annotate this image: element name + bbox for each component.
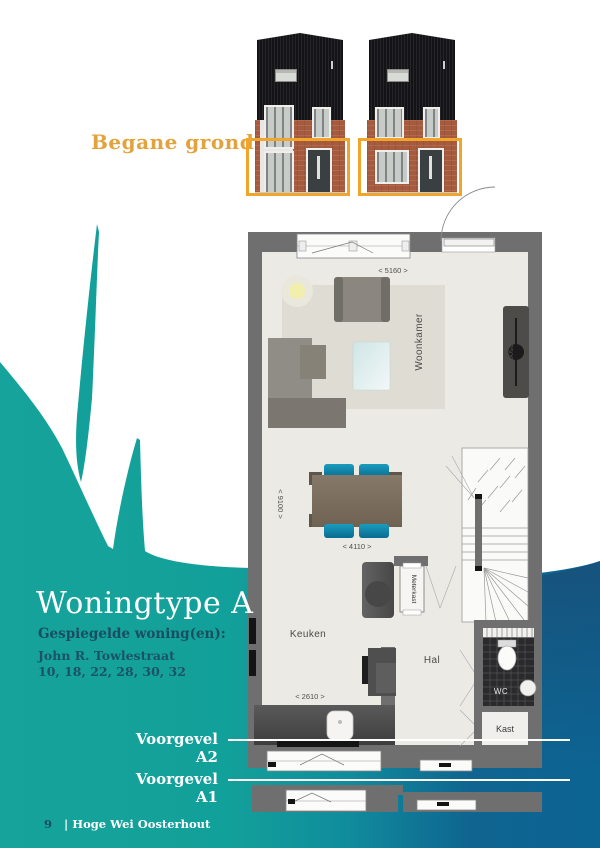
page-footer: 9| Hoge Wei Oosterhout: [44, 817, 210, 831]
kitchen-sink: [327, 711, 353, 740]
room-label-hal: Hal: [424, 655, 440, 666]
mirrored-homes-label: Gespiegelde woning(en):: [38, 626, 226, 642]
project-name: | Hoge Wei Oosterhout: [64, 817, 210, 831]
dimension-3500: < 3500 >: [506, 337, 515, 367]
floor-label: Begane grond: [91, 130, 254, 154]
roof-vent: [443, 61, 445, 69]
dimension-9100: < 9100 >: [276, 489, 285, 519]
dimension-4110: < 4110 >: [342, 542, 372, 551]
grass-blade-shape: [76, 224, 99, 482]
dining-table: [312, 475, 402, 527]
room-label-meterkast: Meterkast: [410, 575, 417, 604]
floor-lamp: [281, 275, 313, 307]
top-window: [297, 234, 410, 258]
roof-vent: [331, 61, 333, 69]
loveseat: [334, 277, 390, 322]
section-line-a1: [228, 779, 570, 781]
house-numbers: 10, 18, 22, 28, 30, 32: [38, 664, 186, 679]
section-label-voorgevel-a2: Voorgevel A2: [118, 730, 218, 766]
brochure-page: { "page": { "floor_label": "Begane grond…: [0, 0, 600, 848]
bottom-window-small: [420, 760, 472, 771]
stair-wall: [475, 494, 482, 571]
roof-window: [387, 69, 409, 82]
street-name: John R. Towlestraat: [38, 648, 175, 663]
room-label-wc: WC: [494, 687, 508, 696]
roof-window: [275, 69, 297, 82]
floor-plan: Woonkamer Keuken Hal WC Kast Meterkast <…: [240, 185, 560, 830]
window-upper-right: [423, 107, 440, 139]
window-upper-left: [375, 107, 404, 139]
bottom-window-large: [267, 751, 381, 771]
toilet: [498, 646, 516, 670]
kitchen-tall-cabinet: [362, 562, 394, 618]
ground-floor-highlight-a2: [246, 138, 350, 196]
facade-section-strip: [252, 785, 542, 812]
dimension-2610: < 2610 >: [295, 692, 325, 701]
section-label-voorgevel-a1: Voorgevel A1: [118, 770, 218, 806]
coffee-table: [353, 342, 390, 390]
entrance-door: [441, 187, 495, 252]
dining-chair: [359, 524, 389, 538]
staircase: [462, 448, 528, 622]
window-small: [312, 107, 331, 139]
room-label-kast: Kast: [496, 724, 515, 734]
dimension-5160: < 5160 >: [378, 266, 408, 275]
wc-sink: [520, 680, 536, 696]
wc-room: [474, 620, 542, 712]
page-title: Woningtype A: [36, 586, 253, 621]
ground-floor-highlight-a1: [358, 138, 462, 196]
page-number: 9: [44, 817, 52, 831]
room-label-woonkamer: Woonkamer: [414, 313, 425, 371]
dining-set: [309, 464, 402, 538]
dining-chair: [324, 524, 354, 538]
room-label-keuken: Keuken: [290, 629, 326, 640]
section-line-a2: [228, 739, 570, 741]
